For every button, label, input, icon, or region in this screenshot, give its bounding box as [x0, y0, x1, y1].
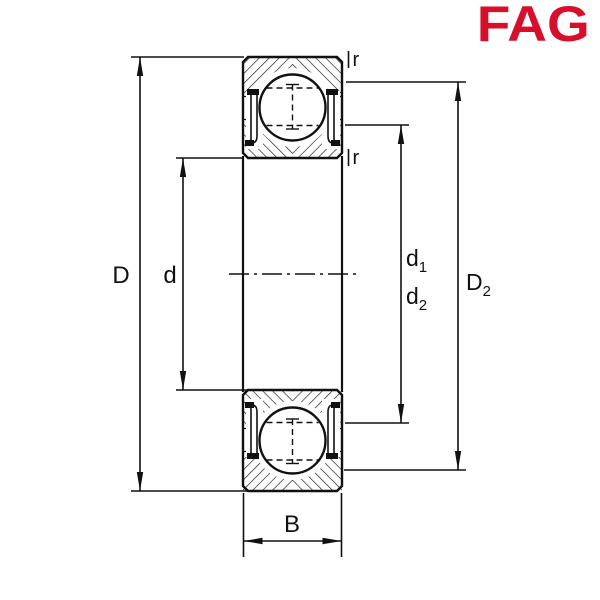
arrowhead [180, 158, 186, 177]
label-d1-base: d [406, 245, 419, 271]
dimension-D2 [344, 82, 466, 470]
arrowhead [398, 404, 404, 423]
label-d2-base: d [406, 283, 419, 309]
label-r-bottom: r [353, 147, 360, 169]
fag-logo: FAG [477, 1, 590, 47]
label-D2: D2 [466, 269, 491, 300]
label-d2-subscript: 2 [419, 297, 427, 314]
arrowhead [323, 538, 342, 544]
technical-drawing: D d d1 d2 [0, 0, 600, 600]
radius-callout-top: r [349, 49, 360, 71]
label-d: d [163, 262, 176, 289]
arrowhead [137, 472, 143, 491]
label-D: D [112, 262, 129, 289]
arrowhead [137, 57, 143, 76]
label-D2-base: D [466, 269, 483, 295]
label-d1: d1 [406, 245, 427, 276]
arrowhead [398, 125, 404, 144]
arrowhead [244, 538, 263, 544]
arrowhead [455, 451, 461, 470]
label-B: B [284, 511, 300, 538]
arrowhead [180, 371, 186, 390]
label-d2: d2 [406, 283, 427, 314]
bearing-top-section [243, 57, 342, 158]
bearing-drawing-page: D d d1 d2 [0, 0, 600, 600]
label-r-top: r [353, 49, 360, 71]
arrowhead [455, 82, 461, 101]
label-D2-subscript: 2 [483, 283, 491, 300]
bearing-bottom-section [243, 390, 342, 491]
radius-callout-bottom: r [349, 147, 360, 169]
label-d1-subscript: 1 [419, 259, 427, 276]
